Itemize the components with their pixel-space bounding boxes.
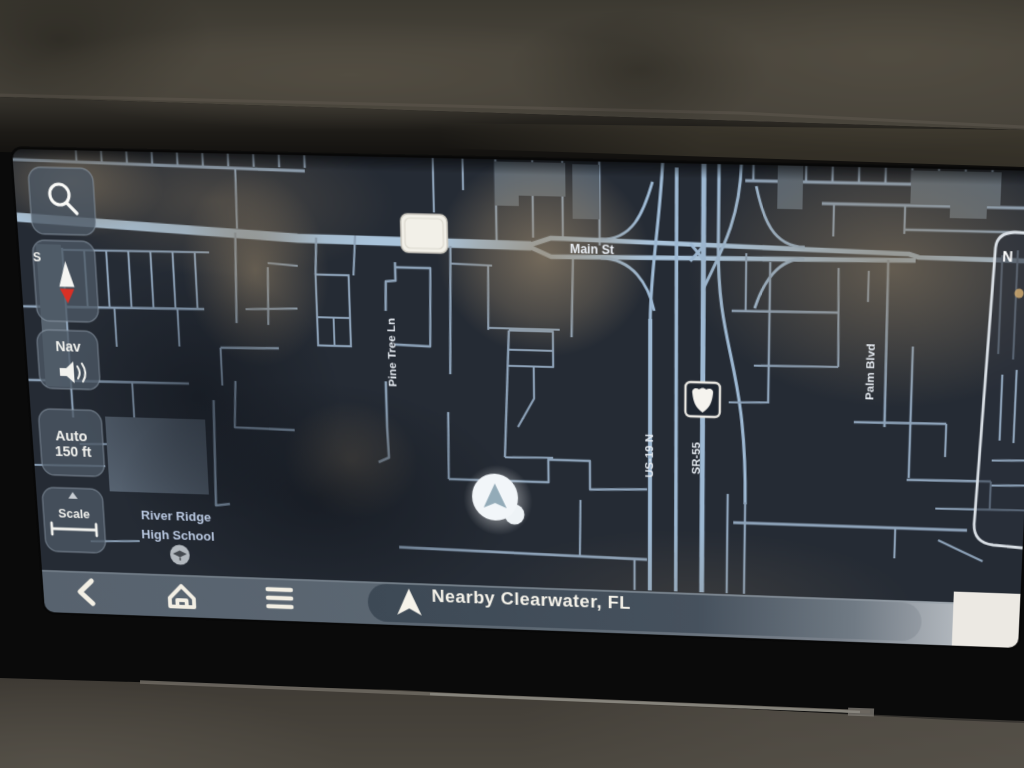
svg-text:Palm Blvd: Palm Blvd [863,343,877,400]
svg-text:US-19 N: US-19 N [643,434,656,478]
svg-text:N: N [1002,249,1013,266]
svg-text:Scale: Scale [58,506,90,521]
svg-text:River Ridge: River Ridge [141,508,212,525]
svg-text:Nav: Nav [55,339,82,355]
svg-text:S: S [33,250,42,264]
svg-text:Pine Tree Ln: Pine Tree Ln [385,318,399,387]
svg-text:150 ft: 150 ft [54,443,92,460]
svg-text:High School: High School [141,527,215,544]
svg-text:Main St: Main St [570,242,615,257]
svg-text:SR-55: SR-55 [690,441,703,474]
